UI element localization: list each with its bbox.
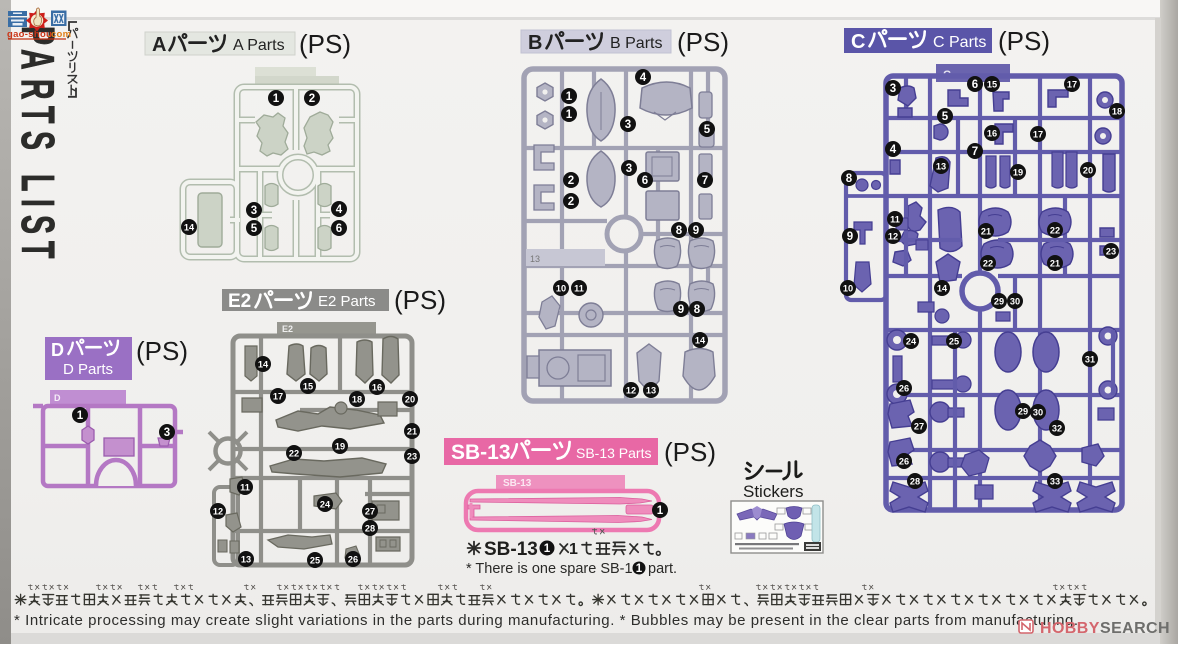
- svg-text:17: 17: [273, 391, 283, 401]
- svg-text:4: 4: [640, 72, 647, 84]
- svg-text:12: 12: [213, 506, 223, 516]
- svg-text:(PS): (PS): [299, 29, 351, 59]
- svg-text:(PS): (PS): [677, 27, 729, 57]
- svg-text:part.: part.: [648, 561, 677, 577]
- svg-text:15: 15: [987, 79, 997, 89]
- svg-text:E2 Parts: E2 Parts: [318, 293, 376, 310]
- svg-text:.com: .com: [48, 29, 71, 40]
- svg-text:13: 13: [241, 554, 251, 564]
- svg-text:26: 26: [899, 383, 909, 393]
- svg-text:23: 23: [407, 451, 417, 461]
- svg-text:2: 2: [568, 196, 574, 208]
- svg-text:23: 23: [1106, 246, 1116, 256]
- svg-text:6: 6: [642, 175, 648, 187]
- svg-text:A: A: [11, 49, 63, 70]
- svg-text:28: 28: [365, 523, 375, 533]
- svg-text:4: 4: [336, 204, 343, 216]
- svg-text:20: 20: [1083, 165, 1093, 175]
- svg-text:19: 19: [335, 441, 345, 451]
- svg-text:21: 21: [407, 426, 417, 436]
- svg-text:1: 1: [569, 541, 578, 558]
- svg-text:25: 25: [949, 336, 959, 346]
- svg-text:24: 24: [320, 499, 331, 509]
- svg-text:31: 31: [1085, 354, 1095, 364]
- svg-text:13: 13: [646, 385, 656, 395]
- svg-text:* Intricate processing may cre: * Intricate processing may create slight…: [14, 612, 1079, 629]
- svg-text:1: 1: [566, 109, 573, 121]
- svg-text:30: 30: [1010, 296, 1020, 306]
- svg-text:33: 33: [1050, 476, 1060, 486]
- svg-text:32: 32: [1052, 423, 1062, 433]
- svg-text:3: 3: [625, 119, 631, 131]
- svg-text:D Parts: D Parts: [63, 361, 113, 378]
- svg-text:B: B: [528, 32, 542, 54]
- svg-text:D: D: [51, 340, 64, 360]
- svg-text:17: 17: [1033, 129, 1043, 139]
- svg-text:18: 18: [352, 394, 362, 404]
- svg-text:16: 16: [372, 382, 382, 392]
- svg-text:12: 12: [888, 231, 898, 241]
- svg-text:29: 29: [1018, 406, 1028, 416]
- svg-text:I: I: [11, 199, 63, 207]
- svg-text:E2: E2: [282, 324, 293, 334]
- svg-text:6: 6: [972, 79, 978, 91]
- svg-text:12: 12: [626, 385, 636, 395]
- svg-text:9: 9: [678, 304, 684, 316]
- svg-text:14: 14: [937, 283, 948, 293]
- svg-text:T: T: [11, 106, 63, 123]
- svg-text:E2: E2: [228, 291, 251, 312]
- svg-text:10: 10: [843, 283, 853, 293]
- svg-text:14: 14: [184, 222, 195, 232]
- svg-text:24: 24: [906, 336, 917, 346]
- svg-text:6: 6: [336, 223, 342, 235]
- svg-text:SB-13: SB-13: [484, 539, 538, 560]
- svg-text:28: 28: [910, 476, 920, 486]
- svg-text:Stickers: Stickers: [743, 482, 803, 501]
- svg-text:21: 21: [1050, 258, 1060, 268]
- svg-text:17: 17: [1067, 79, 1077, 89]
- svg-text:13: 13: [936, 161, 946, 171]
- svg-text:5: 5: [942, 111, 949, 123]
- svg-text:T: T: [11, 241, 63, 258]
- svg-text:7: 7: [702, 175, 708, 187]
- svg-text:gao-shou: gao-shou: [7, 29, 52, 40]
- svg-text:2: 2: [568, 175, 574, 187]
- svg-text:14: 14: [695, 335, 706, 345]
- svg-text:27: 27: [365, 506, 375, 516]
- svg-text:15: 15: [303, 381, 313, 391]
- svg-text:20: 20: [405, 394, 415, 404]
- svg-text:B Parts: B Parts: [610, 35, 662, 52]
- svg-text:HOBBY: HOBBY: [1040, 620, 1100, 637]
- svg-text:(PS): (PS): [664, 437, 716, 467]
- svg-text:SB-13 Parts: SB-13 Parts: [576, 445, 651, 461]
- svg-text:(PS): (PS): [998, 26, 1050, 56]
- svg-text:16: 16: [987, 128, 997, 138]
- svg-text:1: 1: [657, 505, 664, 517]
- svg-text:13: 13: [530, 254, 540, 264]
- svg-text:2: 2: [309, 93, 315, 105]
- svg-text:1: 1: [566, 91, 573, 103]
- svg-text:L: L: [11, 174, 63, 191]
- svg-text:10: 10: [556, 283, 566, 293]
- svg-text:11: 11: [574, 283, 584, 293]
- svg-text:14: 14: [258, 359, 269, 369]
- svg-text:7: 7: [972, 146, 978, 158]
- svg-text:SEARCH: SEARCH: [1100, 620, 1170, 637]
- svg-text:A: A: [152, 34, 166, 56]
- svg-text:1: 1: [77, 410, 84, 422]
- svg-text:3: 3: [890, 83, 896, 95]
- svg-text:S: S: [11, 131, 63, 150]
- svg-text:3: 3: [626, 163, 632, 175]
- svg-text:1: 1: [273, 93, 280, 105]
- svg-text:R: R: [11, 79, 63, 100]
- svg-text:19: 19: [1013, 167, 1023, 177]
- svg-text:21: 21: [981, 226, 991, 236]
- svg-text:* There is one spare SB-13: * There is one spare SB-13: [466, 561, 641, 577]
- svg-text:SB-13: SB-13: [503, 478, 532, 489]
- svg-text:22: 22: [983, 258, 993, 268]
- svg-text:25: 25: [310, 555, 320, 565]
- svg-text:22: 22: [289, 448, 299, 458]
- svg-text:9: 9: [847, 231, 853, 243]
- svg-text:26: 26: [899, 456, 909, 466]
- svg-text:1: 1: [636, 563, 643, 575]
- svg-text:(PS): (PS): [394, 285, 446, 315]
- svg-text:3: 3: [164, 427, 170, 439]
- svg-text:8: 8: [846, 173, 853, 185]
- svg-text:27: 27: [914, 421, 924, 431]
- svg-text:8: 8: [694, 304, 701, 316]
- svg-text:26: 26: [348, 554, 358, 564]
- svg-text:30: 30: [1033, 407, 1043, 417]
- svg-text:3: 3: [251, 205, 257, 217]
- svg-text:5: 5: [704, 124, 711, 136]
- svg-text:8: 8: [676, 225, 683, 237]
- svg-text:11: 11: [890, 214, 900, 224]
- svg-text:(PS): (PS): [136, 336, 188, 366]
- svg-text:18: 18: [1112, 106, 1122, 116]
- svg-text:C: C: [851, 31, 865, 53]
- svg-text:D: D: [54, 393, 61, 403]
- svg-text:4: 4: [890, 144, 897, 156]
- svg-text:22: 22: [1050, 225, 1060, 235]
- svg-text:11: 11: [240, 482, 250, 492]
- svg-text:C Parts: C Parts: [933, 34, 986, 51]
- svg-text:S: S: [11, 215, 63, 234]
- svg-text:SB-13: SB-13: [451, 441, 511, 464]
- svg-text:A Parts: A Parts: [233, 37, 285, 54]
- svg-text:5: 5: [251, 223, 258, 235]
- svg-text:1: 1: [544, 543, 551, 555]
- svg-text:29: 29: [994, 296, 1004, 306]
- svg-text:9: 9: [693, 225, 699, 237]
